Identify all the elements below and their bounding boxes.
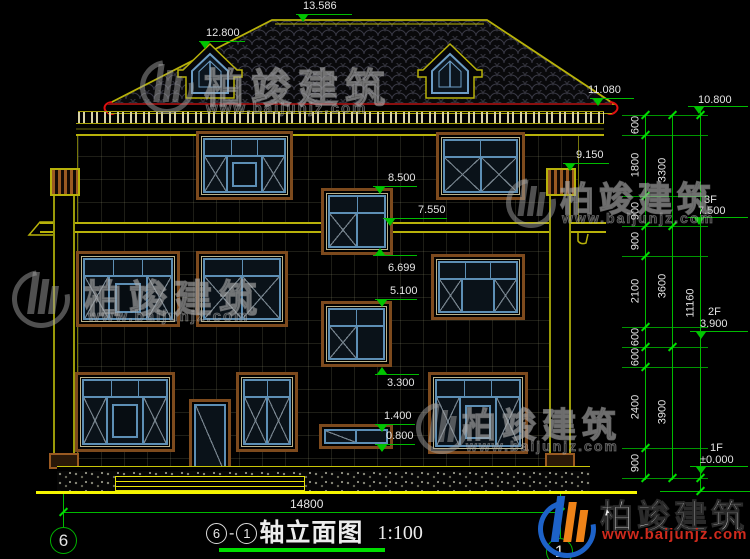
- window-1f-left: [75, 372, 175, 452]
- ext-line: [622, 135, 708, 136]
- level-label: 3.900: [700, 319, 728, 330]
- dim-label: 3600: [658, 274, 669, 298]
- level-triangle: [696, 332, 706, 339]
- dim-label: 2100: [631, 279, 642, 303]
- dim-label-total: 11160: [686, 289, 697, 318]
- axis-bubble-6: 6: [50, 527, 77, 554]
- level-label: ±0.000: [700, 455, 734, 466]
- elev-line: [375, 374, 419, 375]
- dim-chain-line-small: [645, 115, 646, 480]
- cad-elevation-drawing: 600 1800 900 900 2100 600 600 2400 900 3…: [0, 0, 750, 559]
- overall-width-label: 14800: [290, 498, 323, 510]
- elev-triangle: [375, 187, 385, 194]
- title-separator: -: [229, 525, 234, 543]
- elev-triangle: [375, 248, 385, 255]
- elev-triangle: [200, 42, 210, 49]
- watermark-url: www.baijunjz.com: [206, 100, 367, 117]
- elev-dormer: 12.800: [206, 28, 240, 39]
- title-axis-right: 1: [236, 523, 257, 544]
- elev-win2-top: 5.100: [390, 286, 418, 297]
- window-stair-2f: [321, 301, 392, 367]
- elev-winb-top: 1.400: [384, 411, 412, 422]
- dim-chain-line-mid: [672, 115, 673, 480]
- elev-slab3: 7.550: [418, 205, 446, 216]
- watermark-url: www.baijunjz.com: [562, 210, 715, 226]
- elev-eave: 11.080: [588, 85, 621, 96]
- elev-win3-top: 8.500: [388, 173, 416, 184]
- pilaster-left-capital: [50, 168, 80, 196]
- elev-ridge: 13.586: [303, 1, 337, 12]
- window-stair-3f: [321, 188, 393, 255]
- dim-label: 900: [631, 454, 642, 472]
- ext-line: [622, 448, 708, 449]
- elev-winb-bottom: 0.800: [386, 431, 414, 442]
- entry-steps: [115, 476, 305, 491]
- elev-triangle: [565, 164, 575, 171]
- watermark-url: www.baijunjz.com: [88, 308, 249, 325]
- elev-triangle: [385, 219, 395, 226]
- elev-line: [373, 255, 417, 256]
- watermark-logo: [138, 52, 196, 114]
- title-text: 轴立面图: [259, 521, 363, 546]
- watermark-logo: [504, 170, 558, 228]
- dim-chain-line-total: [700, 106, 701, 492]
- level-triangle: [694, 107, 704, 114]
- overall-dim-line: [63, 512, 561, 513]
- slab-bracket-right: [578, 233, 588, 244]
- window-2f-right: [431, 254, 525, 320]
- window-3f-left: [196, 131, 293, 200]
- floor-label: 2F: [708, 307, 721, 318]
- ext-line: [622, 226, 708, 227]
- elev-triangle: [377, 300, 387, 307]
- dim-label: 2400: [631, 395, 642, 419]
- level-triangle: [696, 467, 706, 474]
- drawing-title: 6 - 1 轴立面图 1:100: [206, 521, 423, 546]
- watermark-url: www.baijunjz.com: [466, 438, 619, 454]
- elev-triangle: [377, 367, 387, 374]
- elev-triangle: [298, 15, 308, 22]
- dim-label: 600: [631, 348, 642, 366]
- window-1f-mid: [236, 372, 298, 452]
- watermark-logo-color: [536, 486, 600, 558]
- slab-band-left: [40, 222, 321, 233]
- elev-pilaster: 9.150: [576, 150, 604, 161]
- level-label: 10.800: [698, 95, 732, 106]
- ext-line: [622, 478, 708, 479]
- elev-triangle: [377, 445, 387, 452]
- title-underline: [219, 548, 385, 552]
- floor-label: 1F: [710, 443, 723, 454]
- dim-label: 900: [631, 232, 642, 250]
- watermark-url: www.baijunjz.com: [602, 526, 747, 543]
- ext-line: [622, 367, 708, 368]
- ext-line: [622, 256, 708, 257]
- title-scale: 1:100: [377, 522, 423, 545]
- dim-label: 600: [631, 328, 642, 346]
- dim-label: 600: [631, 116, 642, 134]
- title-axis-left: 6: [206, 523, 227, 544]
- dim-label: 3900: [658, 400, 669, 424]
- elev-win3-bottom: 6.699: [388, 263, 416, 274]
- elev-win1-top: 3.300: [387, 378, 415, 389]
- watermark-logo: [10, 260, 74, 328]
- elev-triangle: [593, 99, 603, 106]
